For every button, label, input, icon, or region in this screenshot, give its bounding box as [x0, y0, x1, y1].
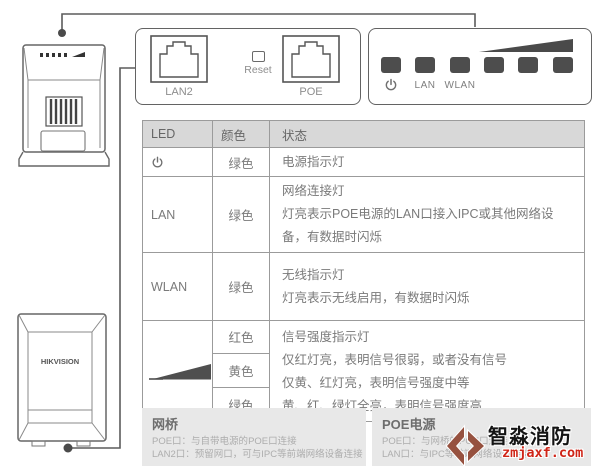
- lan-led: [415, 57, 435, 73]
- reset-label: Reset: [236, 64, 280, 76]
- watermark-logo-icon: [443, 423, 489, 469]
- port-panel: Reset LAN2 POE: [135, 28, 361, 105]
- watermark: 智淼消防 zmjaxf.com: [441, 419, 600, 471]
- led-panel: LAN WLAN: [368, 28, 592, 105]
- hikvision-label: HIKVISION: [41, 357, 79, 366]
- wlan-led: [450, 57, 470, 73]
- watermark-site: zmjaxf.com: [502, 445, 583, 461]
- power-icon: [384, 78, 398, 92]
- reset-button-icon: [252, 51, 265, 62]
- manual-page: HIKVISION Reset LAN2 POE LAN WLAN: [0, 0, 600, 474]
- bridge-device-drawing: [15, 40, 111, 172]
- signal-led-yellow: [518, 57, 538, 73]
- lan2-port-icon: [150, 35, 208, 83]
- poe-device-drawing: HIKVISION: [14, 308, 110, 448]
- signal-led-red: [484, 57, 504, 73]
- wlan-led-label: WLAN: [440, 80, 480, 91]
- poe-port-icon: [282, 35, 340, 83]
- power-led: [381, 57, 401, 73]
- lan2-label: LAN2: [155, 86, 203, 98]
- lan-led-label: LAN: [409, 80, 441, 91]
- poe-label: POE: [287, 86, 335, 98]
- signal-led-green: [553, 57, 573, 73]
- signal-strength-triangle-icon: [479, 38, 573, 52]
